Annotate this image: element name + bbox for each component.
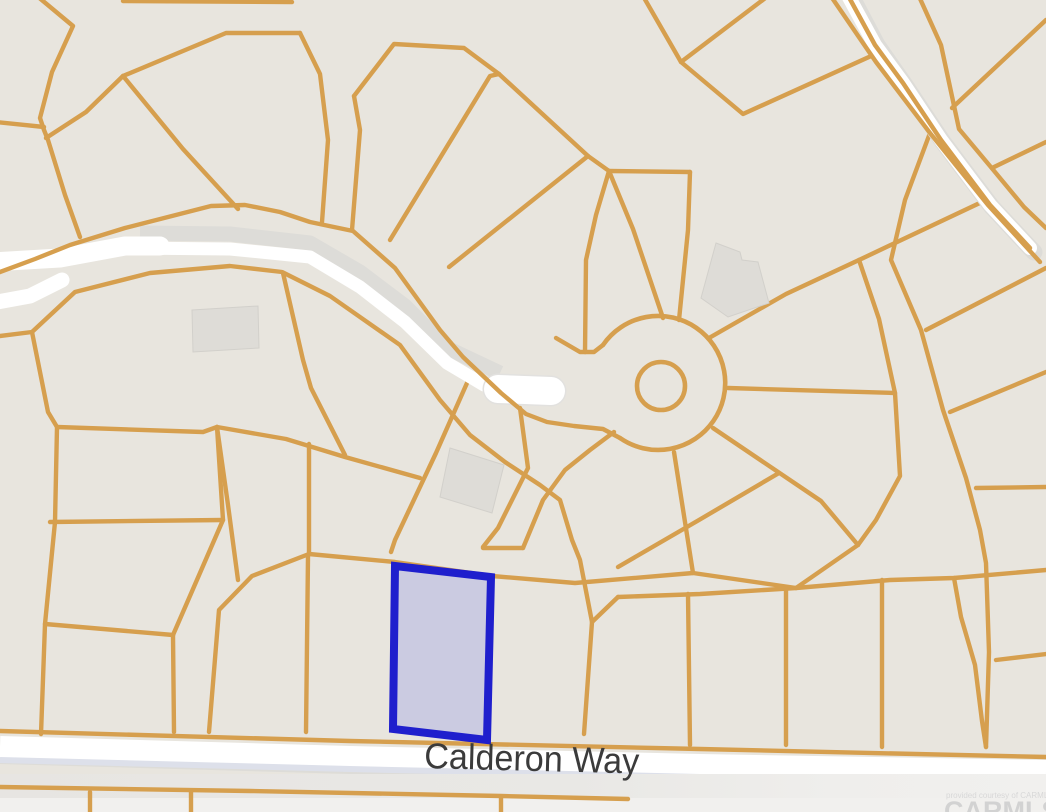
svg-text:Calderon Way: Calderon Way	[424, 735, 640, 782]
svg-text:CARMLS, INC: CARMLS, INC	[944, 796, 1046, 812]
